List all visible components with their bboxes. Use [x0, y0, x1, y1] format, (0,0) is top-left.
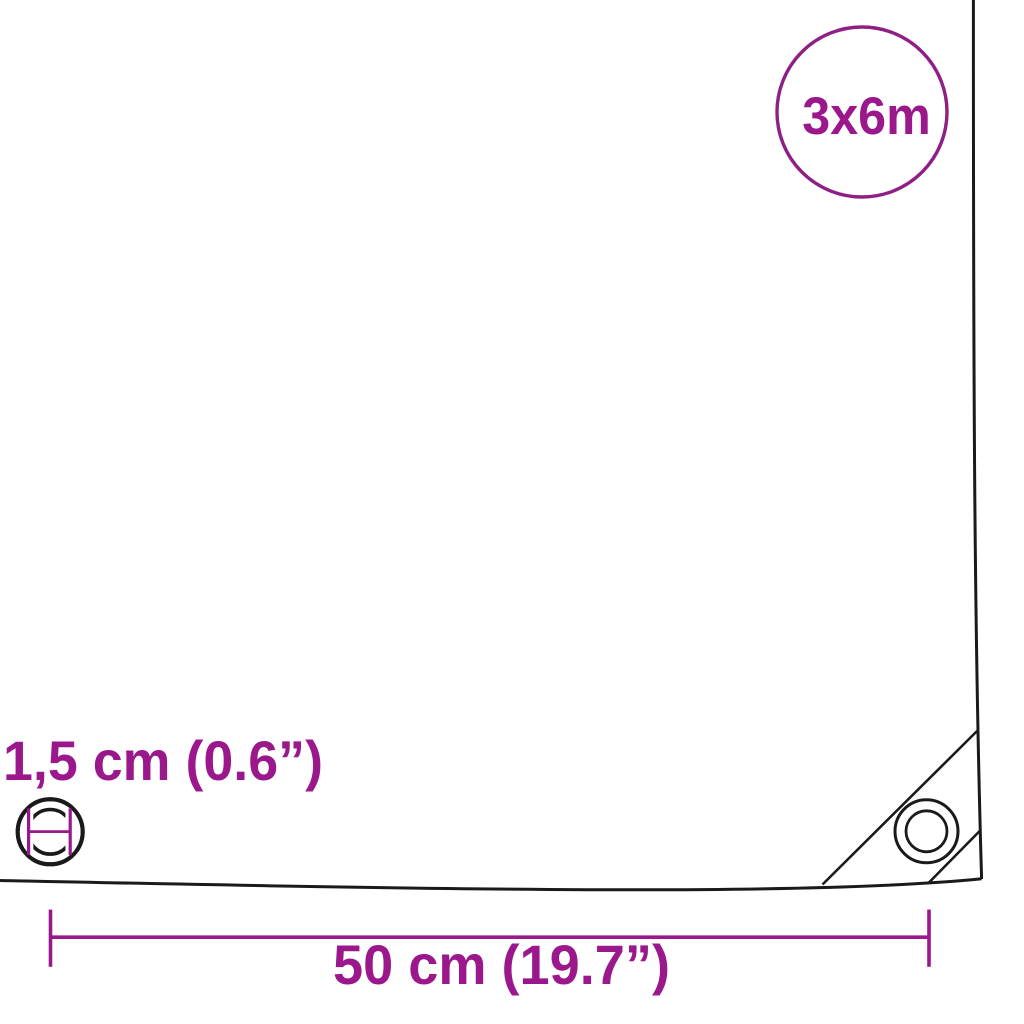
svg-text:1,5 cm (0.6”): 1,5 cm (0.6”) — [3, 730, 323, 792]
svg-text:3x6m: 3x6m — [802, 87, 931, 146]
svg-text:50 cm (19.7”): 50 cm (19.7”) — [333, 934, 670, 996]
